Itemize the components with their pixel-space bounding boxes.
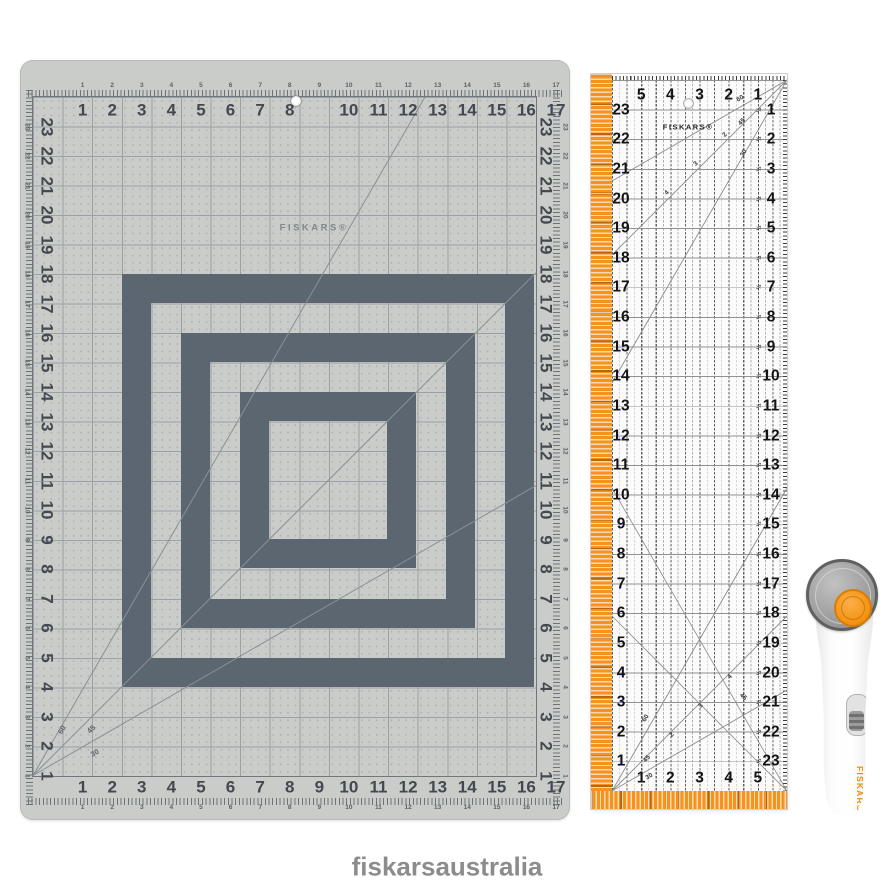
mat-right-tiny-number: 14 <box>561 389 568 396</box>
mat-left-number: 8 <box>39 565 56 574</box>
ruler-right-number: 8 <box>767 309 776 325</box>
mat-left-tiny-number: 21 <box>22 182 29 189</box>
mat-bottom-number: 12 <box>399 779 418 796</box>
mat-right-number: 15 <box>538 353 555 372</box>
ruler-half-mark: ½ <box>757 729 763 734</box>
mat-bottom-number: 5 <box>196 779 205 796</box>
mat-bottom-tiny-number: 10 <box>345 805 352 812</box>
ruler-left-number: 19 <box>612 220 629 236</box>
mat-bottom-number: 8 <box>285 779 294 796</box>
ruler-left-number: 3 <box>617 694 626 710</box>
mat-right-number: 17 <box>538 294 555 313</box>
mat-top-tiny-number: 13 <box>434 82 441 89</box>
ruler-right-number: 10 <box>762 369 779 385</box>
mat-bottom-tiny-number: 12 <box>404 805 411 812</box>
ruler-half-mark: ½ <box>757 611 763 616</box>
mat-bottom-number: 2 <box>107 779 116 796</box>
mat-left-number: 19 <box>39 235 56 254</box>
ruler-hanging-hole <box>684 99 693 108</box>
ruler-half-mark: ½ <box>757 285 763 290</box>
mat-right-tiny-number: 10 <box>561 507 568 514</box>
mat-left-number: 21 <box>39 176 56 195</box>
mat-angle-label-60: 60 <box>56 724 68 736</box>
mat-right-number: 21 <box>538 176 555 195</box>
mat-left-tiny-number: 18 <box>22 270 29 277</box>
ruler-right-number: 17 <box>762 576 779 592</box>
mat-left-number: 3 <box>39 712 56 721</box>
mat-left-tiny-number: 13 <box>22 418 29 425</box>
product-image: 604530 FISKARS® 60453023460453023445 FIS… <box>0 0 896 896</box>
ruler-right-number: 12 <box>762 428 779 444</box>
mat-bottom-tiny-number: 1 <box>81 805 85 812</box>
mat-left-number: 23 <box>39 117 56 136</box>
cutter-fiskars-logo: FISKARS® <box>855 766 865 823</box>
ruler-right-number: 5 <box>767 220 776 236</box>
mat-right-number: 8 <box>538 565 555 574</box>
mat-right-tiny-number: 7 <box>561 597 568 601</box>
ruler-bl-angle-label-30: 30 <box>644 772 654 782</box>
mat-left-number: 14 <box>39 383 56 402</box>
mat-bottom-tiny-number: 2 <box>110 805 114 812</box>
ruler-left-number: 21 <box>612 161 629 177</box>
ruler-right-number: 15 <box>762 517 779 533</box>
site-brand-text: fiskarsaustralia <box>352 852 543 883</box>
mat-top-number: 5 <box>196 102 205 119</box>
slider-thumb <box>849 711 864 731</box>
ruler-right-number: 18 <box>762 606 779 622</box>
ruler-half-mark: ½ <box>757 226 763 231</box>
ruler-left-number: 22 <box>612 132 629 148</box>
ruler-tr-angle-label-45: 45 <box>737 117 747 127</box>
mat-right-tiny-number: 9 <box>561 538 568 542</box>
mat-bottom-number: 17 <box>547 779 566 796</box>
ruler-bl-angle-label-60: 60 <box>641 713 651 723</box>
mat-top-number: 7 <box>255 102 264 119</box>
ruler-left-number: 1 <box>617 754 626 770</box>
mat-top-tiny-number: 11 <box>375 82 382 89</box>
mat-right-number: 4 <box>538 683 555 692</box>
ruler-right-number: 19 <box>762 635 779 651</box>
mat-right-number: 16 <box>538 324 555 343</box>
ruler-bottom-number: 1 <box>637 770 646 786</box>
mat-right-number: 23 <box>538 117 555 136</box>
mat-left-number: 17 <box>39 294 56 313</box>
mat-bottom-tiny-number: 3 <box>140 805 144 812</box>
mat-left-number: 20 <box>39 206 56 225</box>
mat-bottom-tiny-number: 7 <box>258 805 262 812</box>
mat-right-tiny-number: 23 <box>561 123 568 130</box>
mat-left-number: 9 <box>39 535 56 544</box>
ruler-right-number: 14 <box>762 487 779 503</box>
mat-right-number: 7 <box>538 594 555 603</box>
mat-right-number: 2 <box>538 742 555 751</box>
ruler-left-number: 17 <box>612 280 629 296</box>
ruler-half-mark: ½ <box>757 344 763 349</box>
mat-right-tiny-number: 3 <box>561 715 568 719</box>
mat-right-tiny-number: 18 <box>561 270 568 277</box>
mat-right-tiny-number: 22 <box>561 152 568 159</box>
mat-left-tiny-number: 17 <box>22 300 29 307</box>
mat-bottom-tiny-number: 8 <box>288 805 292 812</box>
mat-bottom-number: 14 <box>458 779 477 796</box>
ruler-right-number: 7 <box>767 280 776 296</box>
mat-left-number: 12 <box>39 442 56 461</box>
blade-button-ring <box>841 596 865 620</box>
ruler-left-number: 9 <box>617 517 626 533</box>
mat-left-tiny-number: 6 <box>22 627 29 631</box>
mat-bottom-number: 11 <box>369 779 387 796</box>
mat-bottom-number: 7 <box>255 779 264 796</box>
ruler-top-number: 5 <box>637 87 646 103</box>
ruler-left-number: 12 <box>612 428 629 444</box>
mat-left-number: 2 <box>39 742 56 751</box>
mat-top-number: 12 <box>399 102 418 119</box>
mat-top-tiny-number: 10 <box>345 82 352 89</box>
mat-right-tiny-number: 21 <box>561 182 568 189</box>
mat-right-tiny-number: 20 <box>561 211 568 218</box>
ruler-half-mark: ½ <box>757 255 763 260</box>
ruler-top-number: 1 <box>754 87 763 103</box>
ruler-bl-45-marker: 4 <box>726 673 734 681</box>
mat-left-tiny-number: 4 <box>22 686 29 690</box>
mat-top-number: 8 <box>285 102 294 119</box>
ruler-left-number: 15 <box>612 339 629 355</box>
mat-bottom-tiny-number: 14 <box>464 805 471 812</box>
mat-left-number: 22 <box>39 147 56 166</box>
ruler-left-number: 10 <box>612 487 629 503</box>
mat-right-number: 22 <box>538 147 555 166</box>
mat-top-number: 15 <box>487 102 506 119</box>
mat-right-number: 18 <box>538 265 555 284</box>
mat-bottom-number: 10 <box>339 779 358 796</box>
mat-right-number: 5 <box>538 653 555 662</box>
mat-angle-lines: 604530 <box>20 60 570 820</box>
blade-center-button <box>834 589 872 627</box>
ruler-right-number: 20 <box>762 665 779 681</box>
mat-bottom-tiny-number: 16 <box>523 805 530 812</box>
rotary-blade-guard <box>806 559 878 631</box>
ruler-right-number: 23 <box>762 754 779 770</box>
ruler-half-mark: ½ <box>757 463 763 468</box>
ruler-left-number: 23 <box>612 102 629 118</box>
ruler-right-number: 9 <box>767 339 776 355</box>
mat-left-tiny-number: 12 <box>22 448 29 455</box>
mat-right-number: 9 <box>538 535 555 544</box>
mat-right-number: 11 <box>538 472 555 490</box>
mat-right-number: 6 <box>538 624 555 633</box>
mat-right-tiny-number: 5 <box>561 656 568 660</box>
mat-top-tiny-number: 1 <box>81 82 85 89</box>
mat-right-tiny-number: 13 <box>561 418 568 425</box>
mat-right-tiny-number: 4 <box>561 686 568 690</box>
ruler-bottom-number: 4 <box>724 770 733 786</box>
ruler-left-number: 18 <box>612 250 629 266</box>
mat-bottom-number: 13 <box>428 779 447 796</box>
mat-top-number: 2 <box>107 102 116 119</box>
mat-line-30deg <box>33 486 536 776</box>
mat-right-tiny-number: 1 <box>561 774 568 778</box>
mat-right-tiny-number: 15 <box>561 359 568 366</box>
mat-top-number: 13 <box>428 102 447 119</box>
mat-bottom-tiny-number: 11 <box>375 805 382 812</box>
mat-top-tiny-number: 3 <box>140 82 144 89</box>
ruler-right-number: 3 <box>767 161 776 177</box>
mat-top-number: 16 <box>517 102 536 119</box>
ruler-left-number: 8 <box>617 546 626 562</box>
mat-bottom-number: 4 <box>167 779 176 796</box>
mat-left-tiny-number: 9 <box>22 538 29 542</box>
mat-top-tiny-number: 6 <box>229 82 233 89</box>
ruler-br-angle-label-45: 45 <box>738 692 748 702</box>
mat-left-number: 4 <box>39 683 56 692</box>
cutter-hanging-hole <box>851 845 866 860</box>
mat-right-number: 1 <box>538 771 555 780</box>
mat-top-tiny-number: 7 <box>258 82 262 89</box>
ruler-left-number: 16 <box>612 309 629 325</box>
mat-right-number: 19 <box>538 235 555 254</box>
mat-left-number: 7 <box>39 594 56 603</box>
mat-bottom-number: 16 <box>517 779 536 796</box>
ruler-bottom-number: 3 <box>695 770 704 786</box>
mat-top-tiny-number: 14 <box>464 82 471 89</box>
mat-bottom-tiny-number: 17 <box>552 805 559 812</box>
mat-top-tiny-number: 15 <box>493 82 500 89</box>
mat-bottom-number: 1 <box>78 779 87 796</box>
ruler-right-number: 16 <box>762 546 779 562</box>
mat-bottom-number: 3 <box>137 779 146 796</box>
cutting-mat: 604530 FISKARS® <box>20 60 570 820</box>
ruler-bl-45-marker: 2 <box>668 731 676 739</box>
mat-left-tiny-number: 1 <box>22 774 29 778</box>
blade-release-slider <box>846 694 869 736</box>
mat-left-tiny-number: 16 <box>22 330 29 337</box>
mat-top-tiny-number: 9 <box>317 82 321 89</box>
mat-right-number: 20 <box>538 206 555 225</box>
mat-left-number: 18 <box>39 265 56 284</box>
ruler-half-mark: ½ <box>757 522 763 527</box>
ruler-tr-45-marker: 2 <box>721 131 729 139</box>
ruler-right-number: 11 <box>763 398 779 414</box>
mat-top-tiny-number: 16 <box>523 82 530 89</box>
ruler-bottom-number: 2 <box>666 770 675 786</box>
ruler-left-number: 6 <box>617 606 626 622</box>
mat-top-number: 11 <box>369 102 387 119</box>
mat-left-tiny-number: 20 <box>22 211 29 218</box>
rotary-cutter: FISKARS® <box>800 550 896 825</box>
ruler-half-mark: ½ <box>757 137 763 142</box>
mat-left-number: 6 <box>39 624 56 633</box>
mat-left-tiny-number: 2 <box>22 745 29 749</box>
mat-bottom-tiny-number: 6 <box>229 805 233 812</box>
ruler-half-mark: ½ <box>757 403 763 408</box>
mat-right-number: 3 <box>538 712 555 721</box>
ruler-half-mark: ½ <box>757 640 763 645</box>
ruler-right-number: 4 <box>767 191 776 207</box>
mat-left-tiny-number: 19 <box>22 241 29 248</box>
mat-bottom-number: 6 <box>226 779 235 796</box>
mat-bottom-tiny-number: 5 <box>199 805 203 812</box>
ruler-half-mark: ½ <box>757 551 763 556</box>
ruler-half-mark: ½ <box>757 196 763 201</box>
ruler-half-mark: ½ <box>757 107 763 112</box>
mat-line-60deg <box>33 97 425 776</box>
mat-left-number: 13 <box>39 412 56 431</box>
mat-top-number: 10 <box>339 102 358 119</box>
mat-left-number: 16 <box>39 324 56 343</box>
mat-right-number: 10 <box>538 501 555 520</box>
ruler-left-number: 4 <box>617 665 626 681</box>
mat-angle-label-45: 45 <box>85 723 97 735</box>
ruler-top-number: 4 <box>666 87 675 103</box>
ruler-left-number: 11 <box>613 457 629 473</box>
ruler-tr-45-marker: 3 <box>692 160 700 168</box>
mat-right-number: 14 <box>538 383 555 402</box>
mat-left-tiny-number: 8 <box>22 568 29 572</box>
mat-top-number: 17 <box>547 102 566 119</box>
mat-bottom-tiny-number: 9 <box>317 805 321 812</box>
mat-bottom-tiny-number: 4 <box>170 805 174 812</box>
ruler-left-number: 2 <box>617 724 626 740</box>
mat-left-number: 5 <box>39 653 56 662</box>
ruler-half-mark: ½ <box>757 670 763 675</box>
mat-top-number: 14 <box>458 102 477 119</box>
ruler-right-number: 6 <box>767 250 776 266</box>
ruler-fiskars-logo: FISKARS® <box>663 123 713 132</box>
mat-left-tiny-number: 23 <box>22 123 29 130</box>
mat-top-tiny-number: 2 <box>110 82 114 89</box>
mat-right-tiny-number: 2 <box>561 745 568 749</box>
ruler-half-mark: ½ <box>757 314 763 319</box>
ruler-bl-45-marker: 3 <box>697 702 705 710</box>
mat-right-tiny-number: 16 <box>561 330 568 337</box>
mat-left-tiny-number: 10 <box>22 507 29 514</box>
ruler-right-number: 22 <box>762 724 779 740</box>
ruler-left-number: 13 <box>612 398 629 414</box>
ruler-tr-45-marker: 4 <box>663 189 671 197</box>
mat-top-tiny-number: 8 <box>288 82 292 89</box>
mat-bottom-tiny-number: 13 <box>434 805 441 812</box>
mat-right-tiny-number: 19 <box>561 241 568 248</box>
mat-right-tiny-number: 6 <box>561 627 568 631</box>
ruler-left-number: 7 <box>617 576 626 592</box>
ruler-right-number: 2 <box>767 132 776 148</box>
mat-top-tiny-number: 4 <box>170 82 174 89</box>
mat-left-tiny-number: 15 <box>22 359 29 366</box>
ruler-right-number: 13 <box>762 457 779 473</box>
ruler-half-mark: ½ <box>757 374 763 379</box>
ruler-top-number: 3 <box>695 87 704 103</box>
mat-left-tiny-number: 5 <box>22 656 29 660</box>
mat-top-number: 3 <box>137 102 146 119</box>
ruler-half-mark: ½ <box>757 433 763 438</box>
ruler-half-mark: ½ <box>757 700 763 705</box>
mat-right-tiny-number: 8 <box>561 568 568 572</box>
ruler-left-number: 20 <box>612 191 629 207</box>
ruler-half-mark: ½ <box>757 759 763 764</box>
mat-left-tiny-number: 22 <box>22 152 29 159</box>
ruler-bottom-number: 5 <box>754 770 763 786</box>
ruler-left-number: 14 <box>612 369 629 385</box>
ruler-top-number: 2 <box>724 87 733 103</box>
mat-top-number: 6 <box>226 102 235 119</box>
mat-fiskars-logo: FISKARS® <box>280 223 349 234</box>
ruler-bl-angle-label-45: 45 <box>642 754 652 764</box>
mat-left-number: 15 <box>39 353 56 372</box>
ruler-left-number: 5 <box>617 635 626 651</box>
mat-bottom-number: 15 <box>487 779 506 796</box>
ruler-right-number: 1 <box>767 102 776 118</box>
mat-bottom-number: 9 <box>315 779 324 796</box>
ruler-half-mark: ½ <box>757 581 763 586</box>
mat-left-number: 10 <box>39 501 56 520</box>
mat-top-tiny-number: 5 <box>199 82 203 89</box>
mat-bottom-tiny-number: 15 <box>493 805 500 812</box>
mat-line-45deg <box>33 273 536 776</box>
mat-top-tiny-number: 12 <box>404 82 411 89</box>
mat-right-tiny-number: 17 <box>561 300 568 307</box>
mat-top-number: 4 <box>167 102 176 119</box>
mat-right-number: 13 <box>538 412 555 431</box>
ruler-half-mark: ½ <box>757 166 763 171</box>
mat-top-tiny-number: 17 <box>552 82 559 89</box>
mat-left-tiny-number: 3 <box>22 715 29 719</box>
mat-left-tiny-number: 14 <box>22 389 29 396</box>
ruler-right-number: 21 <box>762 694 779 710</box>
ruler-half-mark: ½ <box>757 492 763 497</box>
mat-right-number: 12 <box>538 442 555 461</box>
ruler-tr-angle-label-60: 60 <box>735 94 745 104</box>
mat-right-tiny-number: 11 <box>561 477 568 484</box>
mat-top-number: 1 <box>78 102 87 119</box>
mat-left-tiny-number: 11 <box>22 477 29 484</box>
mat-right-tiny-number: 12 <box>561 448 568 455</box>
mat-angle-label-30: 30 <box>89 747 101 759</box>
mat-left-tiny-number: 7 <box>22 597 29 601</box>
mat-left-number: 1 <box>39 771 56 780</box>
mat-left-number: 11 <box>39 472 56 490</box>
